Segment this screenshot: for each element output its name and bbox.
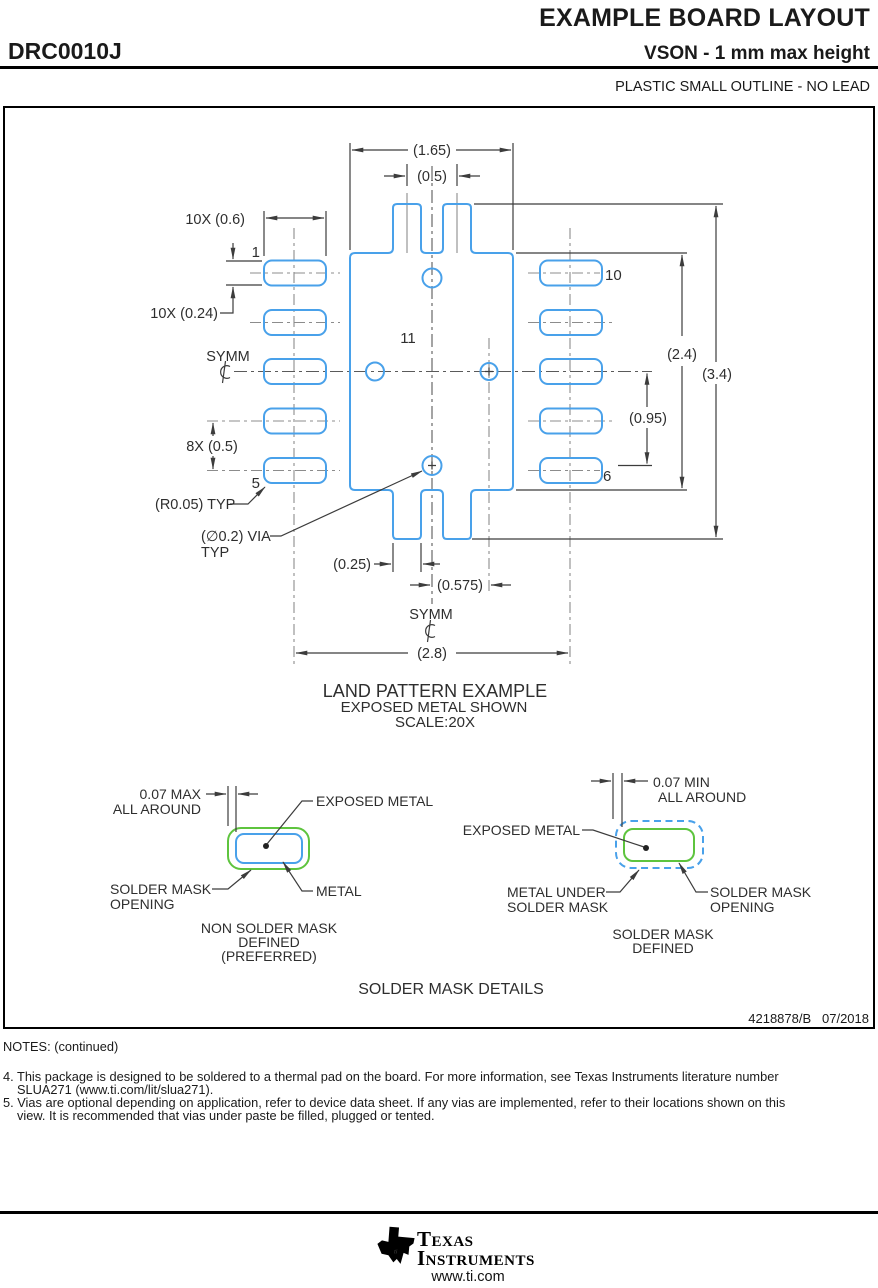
dim-pin-pitch: 8X (0.5) bbox=[186, 439, 238, 455]
notes-section: NOTES: (continued) 4. This package is de… bbox=[3, 1041, 803, 1123]
nsmd-opening-label-line1: SOLDER MASK bbox=[110, 881, 212, 897]
dim-via-line1: (∅0.2) VIA bbox=[201, 529, 271, 545]
smd-metal-under-label-line1: METAL UNDER bbox=[507, 884, 606, 900]
caption-line3: SCALE:20X bbox=[395, 714, 475, 731]
footer-rule bbox=[0, 1211, 878, 1214]
centerlines bbox=[207, 166, 652, 668]
nsmd-exposed-metal-label: EXPOSED METAL bbox=[316, 793, 433, 809]
smd-opening-label-line2: OPENING bbox=[710, 899, 775, 915]
note-4: 4. This package is designed to be solder… bbox=[3, 1071, 803, 1097]
dim-total-length: (3.4) bbox=[702, 367, 732, 383]
pin-10-label: 10 bbox=[605, 267, 622, 284]
pin-pad bbox=[540, 310, 602, 335]
smd-metal-under-label-line2: SOLDER MASK bbox=[507, 899, 609, 915]
brand-name: Texas Instruments bbox=[417, 1230, 535, 1267]
exposed-metal-dot bbox=[643, 845, 649, 851]
smd-dim-line2: ALL AROUND bbox=[658, 789, 746, 805]
pin-6-label: 6 bbox=[603, 468, 611, 485]
dimension-labels: (1.65) (0.5) 10X (0.6) 1 10X (0.24) SYMM… bbox=[150, 143, 732, 662]
symm-label-left: SYMM bbox=[206, 349, 250, 365]
dim-notch-pitch: (0.5) bbox=[417, 169, 447, 185]
view-caption: LAND PATTERN EXAMPLE EXPOSED METAL SHOWN… bbox=[323, 681, 547, 731]
dim-via-line2: TYP bbox=[201, 545, 229, 561]
exposed-metal-dot bbox=[263, 843, 269, 849]
dim-row-span: (2.8) bbox=[417, 646, 447, 662]
nsmd-detail: 0.07 MAX ALL AROUND EXPOSED METAL SOLDER… bbox=[110, 786, 433, 964]
dim-pin-pad-h: 10X (0.24) bbox=[150, 306, 218, 322]
ti-website-url: www.ti.com bbox=[403, 1269, 533, 1285]
dim-pad-length: (2.4) bbox=[667, 347, 697, 363]
solder-mask-details-title: SOLDER MASK DETAILS bbox=[358, 981, 544, 998]
dim-pin-pad-w: 10X (0.6) bbox=[185, 212, 245, 228]
pin-5-label: 5 bbox=[252, 475, 260, 492]
solder-mask-opening-shape bbox=[624, 829, 694, 861]
doc-revision-ref: 4218878/B 07/2018 bbox=[748, 1011, 869, 1026]
pin-11-label: 11 bbox=[400, 330, 416, 347]
smd-opening-label-line1: SOLDER MASK bbox=[710, 884, 812, 900]
ti-logo-icon: ti bbox=[377, 1226, 415, 1270]
notes-heading: NOTES: (continued) bbox=[3, 1041, 803, 1054]
dim-corner-radius: (R0.05) TYP bbox=[155, 497, 235, 513]
pin-1-label: 1 bbox=[252, 244, 260, 261]
smd-caption-line2: DEFINED bbox=[632, 940, 693, 956]
brand-line2: Instruments bbox=[417, 1249, 535, 1268]
nsmd-dim-line2: ALL AROUND bbox=[113, 801, 201, 817]
datasheet-page: { "header": { "title": "EXAMPLE BOARD LA… bbox=[0, 0, 878, 1288]
note-5: 5. Vias are optional depending on applic… bbox=[3, 1097, 803, 1123]
pin-pad bbox=[540, 409, 602, 434]
smd-dim-line1: 0.07 MIN bbox=[653, 774, 710, 790]
centerline-symbol-icon bbox=[426, 620, 435, 642]
nsmd-caption-line3: (PREFERRED) bbox=[221, 948, 317, 964]
pin-pad bbox=[540, 458, 602, 483]
dim-pad-width: (1.65) bbox=[413, 143, 451, 159]
extension-lines bbox=[226, 143, 723, 572]
metal-pad-shape bbox=[236, 834, 302, 863]
smd-exposed-metal-label: EXPOSED METAL bbox=[463, 822, 580, 838]
dim-notch-w: (0.25) bbox=[333, 557, 371, 573]
smd-detail: 0.07 MIN ALL AROUND EXPOSED METAL METAL … bbox=[463, 773, 812, 956]
dim-via-offset-y: (0.95) bbox=[629, 411, 667, 427]
nsmd-dim-line1: 0.07 MAX bbox=[140, 786, 202, 802]
ti-logo-text: ti bbox=[394, 1249, 398, 1255]
nsmd-opening-label-line2: OPENING bbox=[110, 896, 175, 912]
nsmd-metal-label: METAL bbox=[316, 883, 362, 899]
caption-line1: LAND PATTERN EXAMPLE bbox=[323, 681, 547, 701]
dim-via-offset-x: (0.575) bbox=[437, 578, 483, 594]
pin-pad bbox=[540, 261, 602, 286]
symm-label-bottom: SYMM bbox=[409, 607, 453, 623]
